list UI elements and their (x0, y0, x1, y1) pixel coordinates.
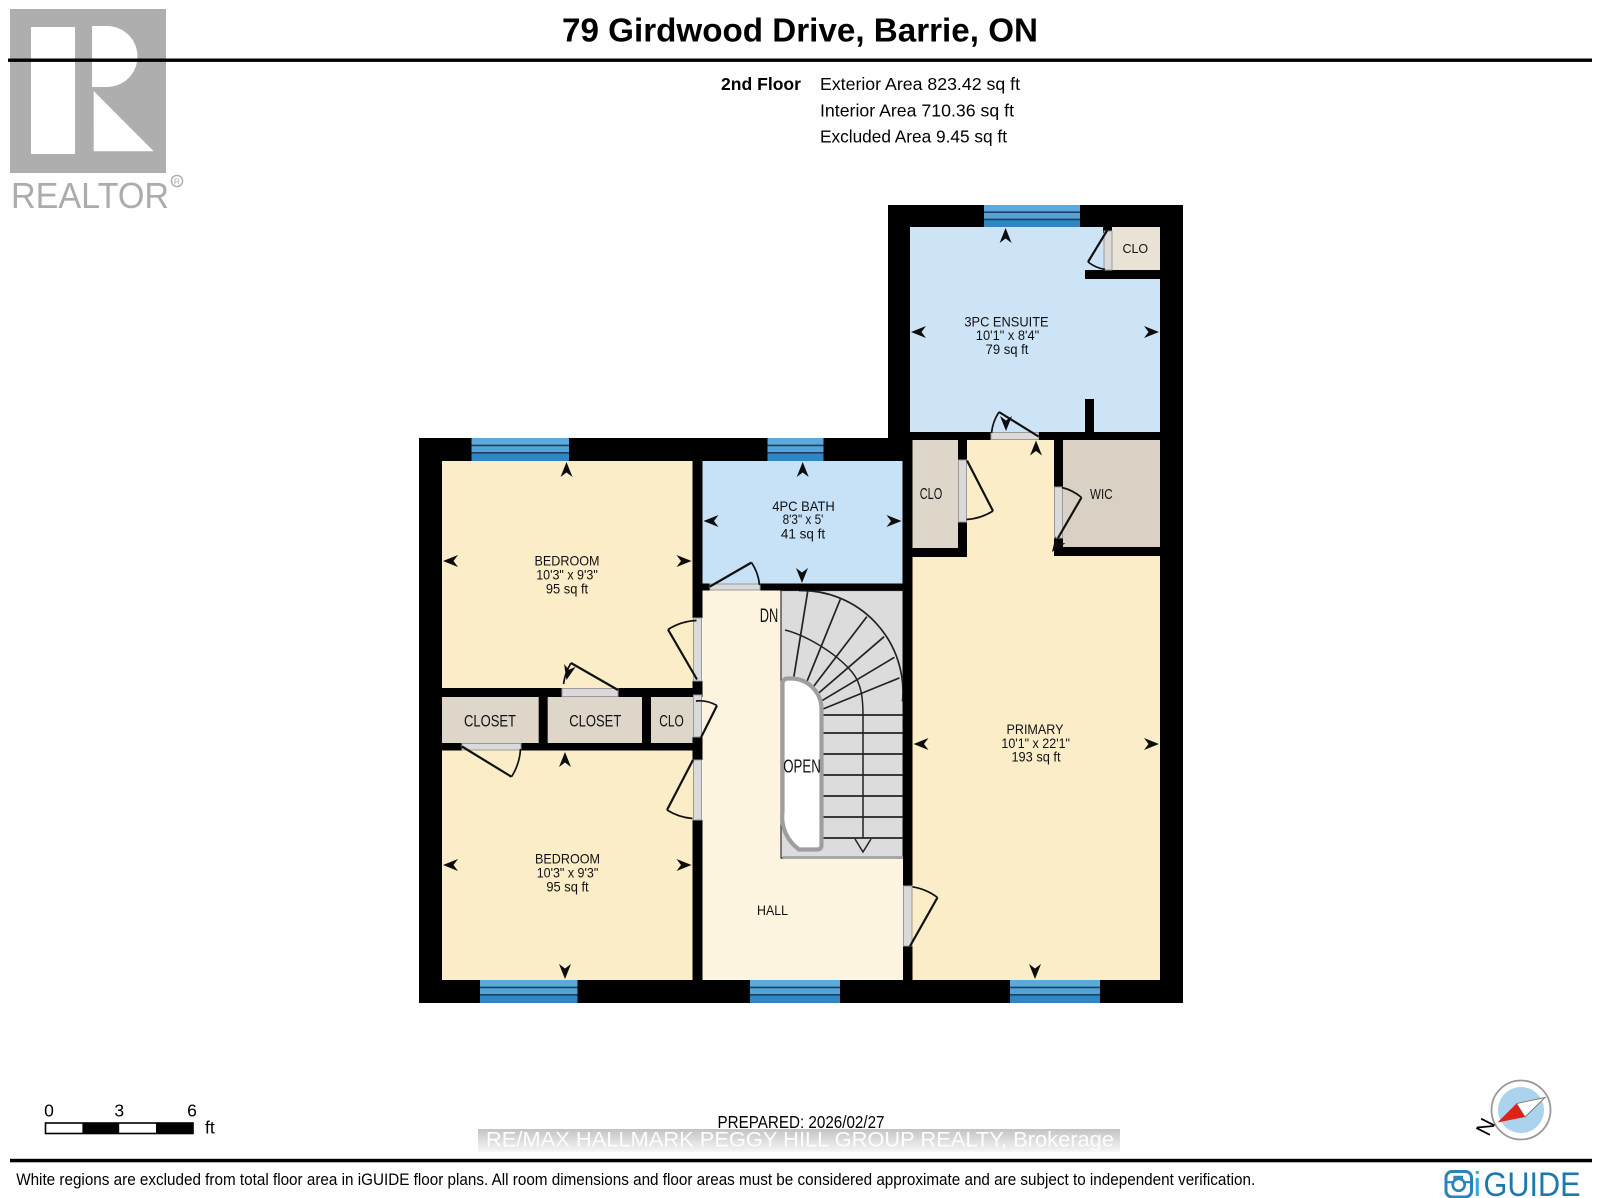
svg-text:95 sq ft: 95 sq ft (546, 879, 588, 894)
svg-text:GUIDE: GUIDE (1484, 1166, 1581, 1198)
svg-text:White regions are excluded fro: White regions are excluded from total fl… (16, 1171, 1255, 1189)
svg-text:10'1" x 8'4": 10'1" x 8'4" (976, 328, 1040, 343)
svg-text:CLOSET: CLOSET (569, 713, 621, 731)
svg-text:DN: DN (760, 606, 779, 627)
svg-text:BEDROOM: BEDROOM (535, 850, 600, 866)
svg-text:R: R (174, 177, 180, 187)
svg-text:8'3" x 5': 8'3" x 5' (783, 512, 824, 527)
svg-text:PREPARED: 2026/02/27: PREPARED: 2026/02/27 (718, 1112, 885, 1132)
svg-text:CLO: CLO (1122, 242, 1148, 256)
svg-text:79 sq ft: 79 sq ft (986, 342, 1029, 357)
svg-text:Interior Area 710.36 sq ft: Interior Area 710.36 sq ft (820, 100, 1014, 120)
svg-text:10'3" x 9'3": 10'3" x 9'3" (537, 865, 599, 880)
svg-text:ft: ft (205, 1118, 215, 1138)
svg-text:WIC: WIC (1090, 487, 1113, 503)
svg-text:10'3" x 9'3": 10'3" x 9'3" (536, 568, 598, 583)
svg-text:6: 6 (187, 1101, 197, 1121)
svg-text:BEDROOM: BEDROOM (535, 553, 600, 569)
svg-text:HALL: HALL (757, 902, 788, 918)
svg-text:CLOSET: CLOSET (464, 713, 516, 731)
svg-text:CLO: CLO (920, 486, 943, 503)
svg-text:0: 0 (44, 1101, 54, 1121)
svg-text:PRIMARY: PRIMARY (1007, 721, 1065, 737)
svg-text:Excluded Area 9.45 sq ft: Excluded Area 9.45 sq ft (820, 127, 1007, 147)
svg-text:CLO: CLO (659, 713, 684, 731)
svg-text:3: 3 (114, 1101, 124, 1121)
svg-text:REALTOR: REALTOR (11, 175, 169, 216)
svg-text:41 sq ft: 41 sq ft (781, 526, 825, 541)
svg-text:Exterior Area 823.42 sq ft: Exterior Area 823.42 sq ft (820, 74, 1020, 94)
svg-text:3PC ENSUITE: 3PC ENSUITE (964, 313, 1048, 329)
svg-text:95 sq ft: 95 sq ft (546, 582, 588, 597)
svg-text:79 Girdwood Drive, Barrie, ON: 79 Girdwood Drive, Barrie, ON (562, 12, 1038, 49)
svg-text:OPEN: OPEN (783, 756, 821, 777)
svg-text:i: i (1474, 1166, 1482, 1198)
svg-text:2nd Floor: 2nd Floor (721, 74, 801, 94)
svg-text:193 sq ft: 193 sq ft (1011, 750, 1060, 765)
